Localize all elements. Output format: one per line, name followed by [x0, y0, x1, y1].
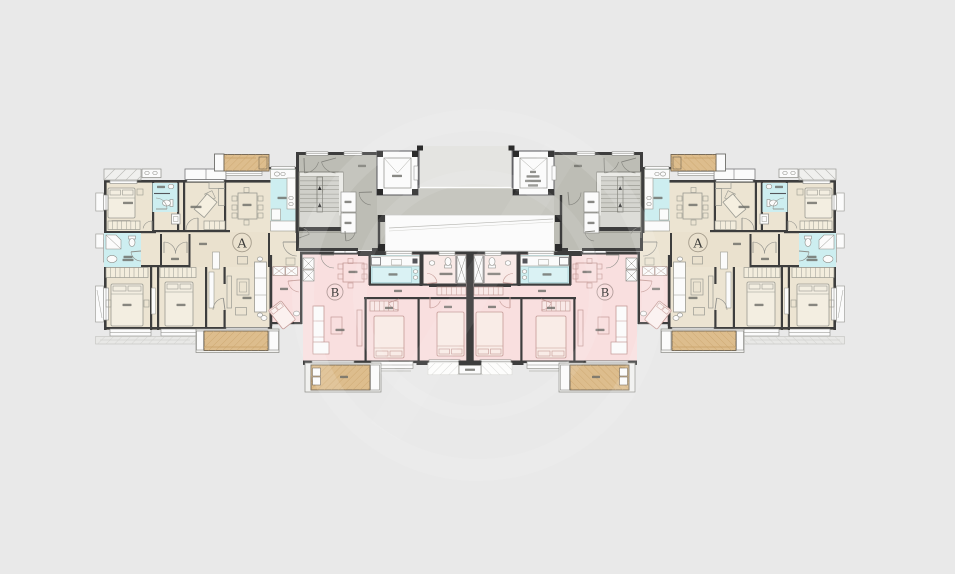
svg-text:A: A	[693, 236, 704, 251]
svg-text:B: B	[331, 285, 339, 299]
svg-text:A: A	[237, 236, 248, 251]
svg-text:B: B	[601, 285, 609, 299]
